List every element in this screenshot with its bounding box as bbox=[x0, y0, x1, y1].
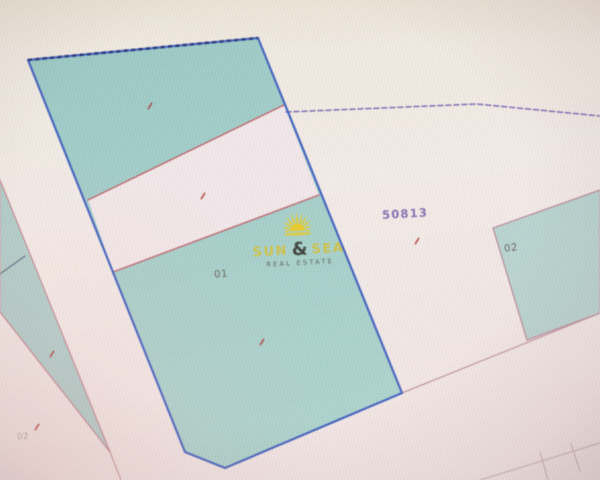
watermark-word2: SEA bbox=[311, 241, 345, 258]
subparcel-02-right-label: 02 bbox=[504, 242, 519, 255]
parcel-number-label: 50813 bbox=[382, 205, 429, 221]
subparcel-02-left-label: 02 bbox=[17, 432, 29, 443]
cadastral-map: SUN&SEA REAL ESTATE 50813 01 02 02 bbox=[0, 0, 600, 480]
watermark-word1: SUN bbox=[252, 244, 288, 261]
cadastral-map-layer: SUN&SEA REAL ESTATE 50813 01 02 02 bbox=[0, 0, 600, 480]
screen-photo: SUN&SEA REAL ESTATE 50813 01 02 02 bbox=[0, 0, 600, 480]
watermark-ampersand: & bbox=[291, 239, 308, 261]
subparcel-01-label: 01 bbox=[214, 269, 228, 281]
